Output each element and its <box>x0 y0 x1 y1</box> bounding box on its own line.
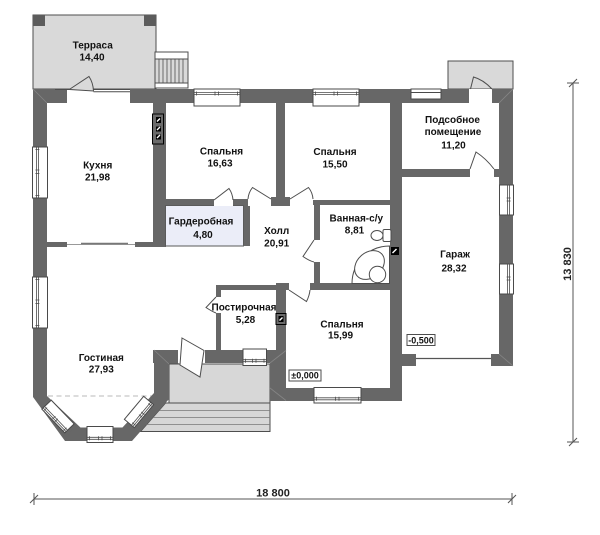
svg-text:Постирочная: Постирочная <box>212 303 277 314</box>
svg-text:16,63: 16,63 <box>207 159 232 170</box>
svg-text:8,81: 8,81 <box>345 226 365 237</box>
svg-text:Спальня: Спальня <box>313 147 356 158</box>
svg-text:Подсобное: Подсобное <box>425 114 480 126</box>
svg-text:13 830: 13 830 <box>562 247 574 281</box>
svg-text:Гостиная: Гостиная <box>79 353 124 364</box>
svg-text:Спальня: Спальня <box>320 320 363 331</box>
svg-text:28,32: 28,32 <box>441 264 466 275</box>
svg-text:20,91: 20,91 <box>264 238 289 249</box>
svg-text:27,93: 27,93 <box>89 365 114 376</box>
svg-text:15,50: 15,50 <box>322 160 347 171</box>
svg-text:Терраса: Терраса <box>73 40 114 51</box>
svg-text:Спальня: Спальня <box>200 146 243 157</box>
svg-text:Кухня: Кухня <box>83 160 112 171</box>
svg-text:21,98: 21,98 <box>85 173 110 184</box>
svg-text:14,40: 14,40 <box>79 52 104 63</box>
svg-text:помещение: помещение <box>425 127 482 138</box>
svg-text:-0,500: -0,500 <box>408 336 434 346</box>
svg-text:11,20: 11,20 <box>441 141 466 152</box>
svg-text:5,28: 5,28 <box>236 315 256 326</box>
svg-text:±0,000: ±0,000 <box>291 371 318 381</box>
svg-text:18 800: 18 800 <box>256 488 290 500</box>
svg-text:15,99: 15,99 <box>328 331 353 342</box>
svg-text:Холл: Холл <box>264 226 289 237</box>
svg-text:Гардеробная: Гардеробная <box>169 216 234 228</box>
svg-text:Ванная-с/у: Ванная-с/у <box>330 213 384 224</box>
svg-text:4,80: 4,80 <box>193 230 213 241</box>
svg-text:Гараж: Гараж <box>440 250 471 261</box>
